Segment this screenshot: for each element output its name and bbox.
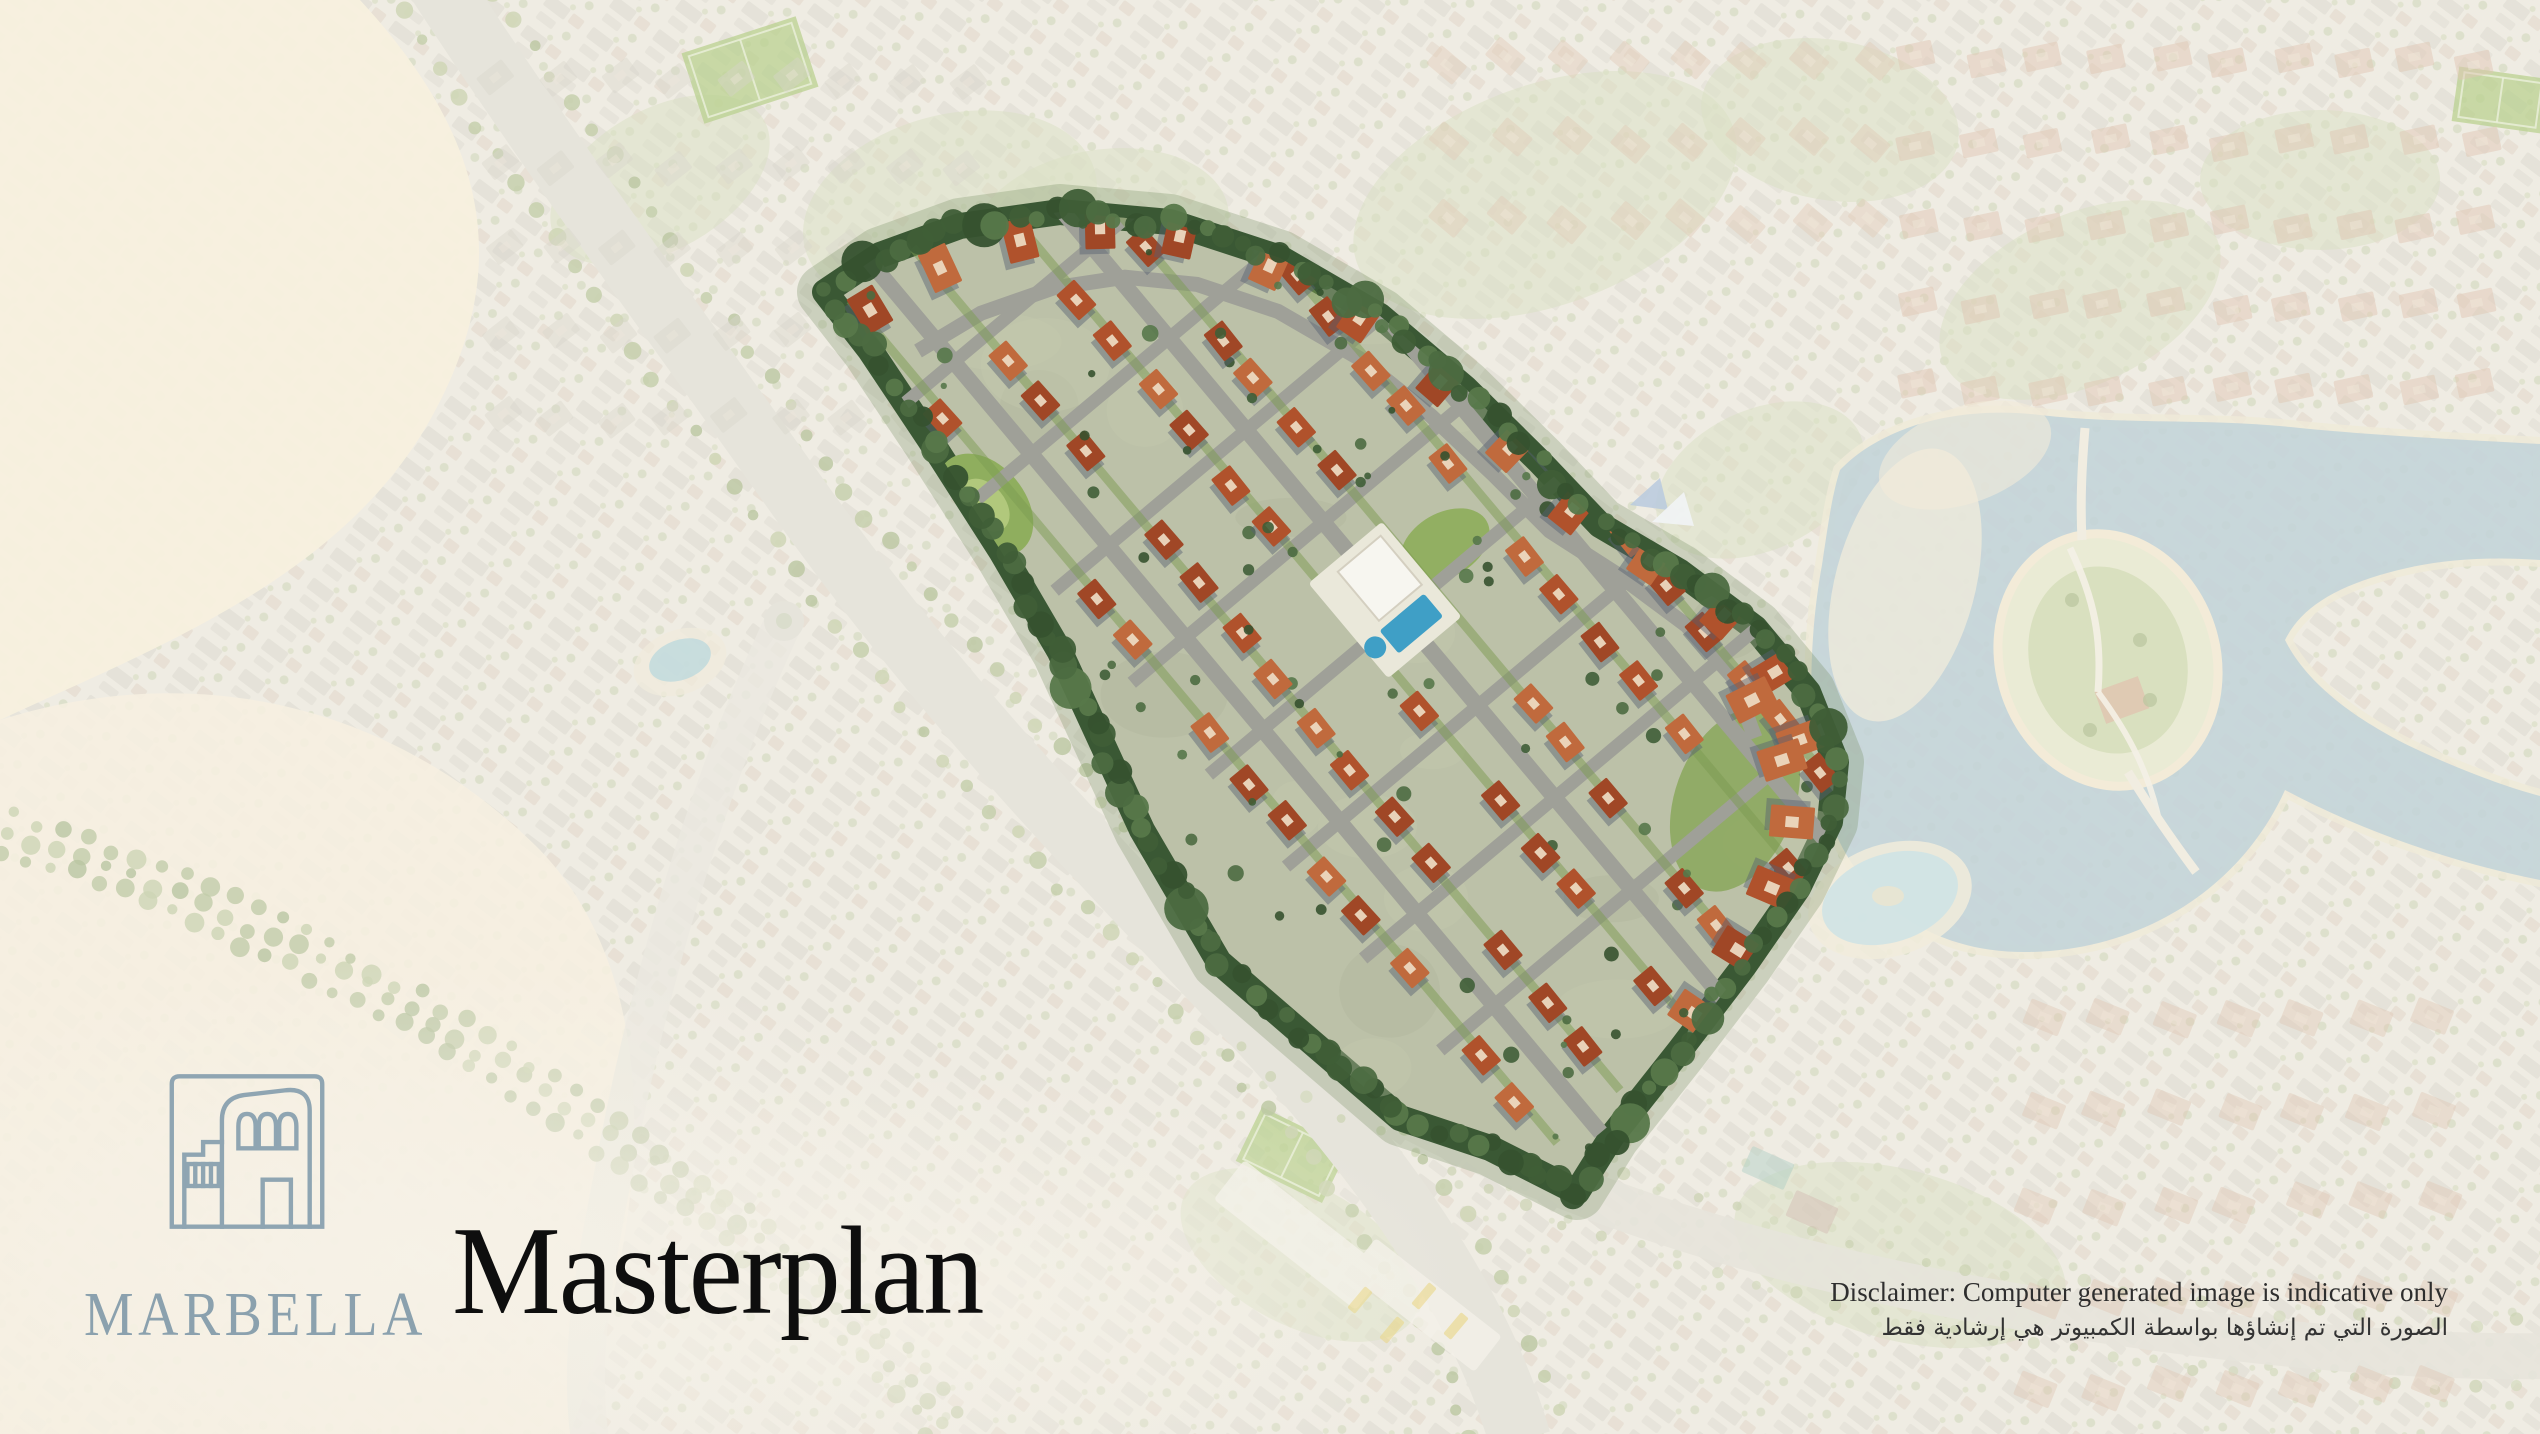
masterplan-title-english: Masterplan — [452, 1206, 982, 1338]
masterplan-page: MARBELLA المخطط الرئيســي Masterplan Dis… — [0, 0, 2540, 1434]
masterplan-aerial-map — [0, 0, 2540, 1434]
disclaimer-english: Disclaimer: Computer generated image is … — [1830, 1276, 2448, 1308]
villa-building-icon — [163, 1070, 331, 1233]
brand-name: MARBELLA — [84, 1280, 381, 1351]
disclaimer-arabic: الصورة التي تم إنشاؤها بواسطة الكمبيوتر … — [1830, 1315, 2448, 1343]
disclaimer-block: Disclaimer: Computer generated image is … — [1830, 1276, 2448, 1343]
